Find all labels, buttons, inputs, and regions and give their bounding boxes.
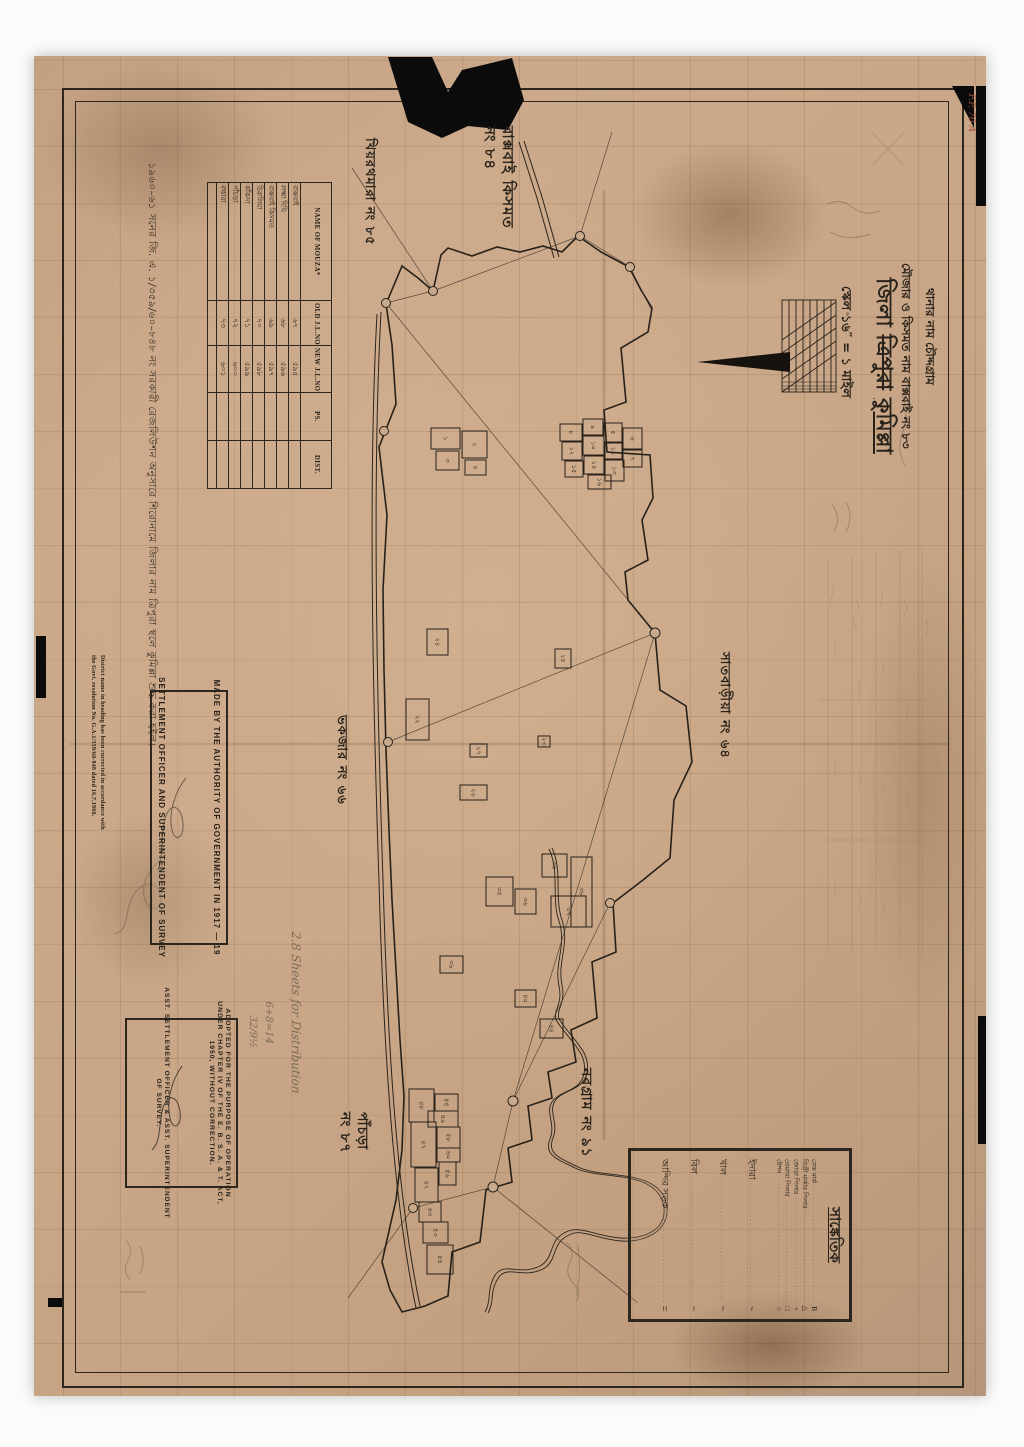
mouza-table-row: লক্ষ্মা দিঘি৬৮৫৯৬ <box>277 183 289 489</box>
map-annotation: বাক্সবাই কিসমতনং ৮৪ <box>480 126 517 229</box>
legend-label: ইদারা <box>745 1159 756 1180</box>
adopted-line5: OF SURVEY. <box>154 1078 162 1127</box>
plot-number: ৬ <box>629 436 637 441</box>
mouza-table-cell: কাঁকসা <box>241 183 253 301</box>
plot-number: ৪২ <box>423 1181 431 1189</box>
mouza-table-cell <box>229 393 241 441</box>
legend-label: তেমাথা পিলার <box>783 1159 790 1197</box>
legend-symbol-icon: B <box>810 1306 818 1311</box>
legend-title: সাঙ্কেতিক <box>826 1159 843 1311</box>
authority-line2: SETTLEMENT OFFICER AND SUPERINTENDENT OF… <box>157 677 166 958</box>
plot-number: ১০ <box>590 441 598 449</box>
adopted-line4: ASST. SETTLEMENT OFFICER & ASST. SUPERIN… <box>162 987 170 1218</box>
legend-leader-dots: ········································… <box>774 1176 780 1304</box>
plot-number: ১৬ <box>596 478 604 487</box>
legend-feature-rows: ইদারা···································… <box>658 1159 757 1311</box>
legend-label: বেঞ্চ মার্ক <box>809 1159 816 1183</box>
mouza-table-row: চিরুলিয়া৭০৫৯৮ <box>253 183 265 489</box>
legend-row: তেমাথা পিলার····························… <box>783 1159 792 1311</box>
legend-symbol-icon: + <box>792 1307 800 1311</box>
mouza-table-row: বাক্সবাই৬৭৫৯৫ <box>289 183 301 489</box>
plot-number: ৫৯ <box>439 1115 447 1124</box>
mouza-table-cell: ৬৯ <box>265 301 277 346</box>
mouza-table-row: বাক্সবাই কিসমত৬৯৫৯৭ <box>265 183 277 489</box>
legend-symbol-icon: = <box>660 1306 670 1311</box>
mouza-table-cell: ৫৯৭ <box>265 346 277 393</box>
mouza-table-row: কাঁকসা৭১৫৯৯ <box>241 183 253 489</box>
district-label: জিলা <box>871 278 896 327</box>
legend-leader-dots: ········································… <box>792 1198 798 1305</box>
mouza-table-header-row: NAME OF MOUZA*OLD J.L.NONEW J.L.NO*PS.DI… <box>301 183 332 489</box>
correction-line1: District name in heading has been correc… <box>97 655 106 830</box>
authority-box-wrap: MADE BY THE AUTHORITY OF GOVERNMENT IN 1… <box>150 690 228 945</box>
plot-parcels: ৮৯৫৬১২১০১১৭১৫১৪১৩১৬১২৩৪২৪২৫২২২৩২৬২৭৩৪৩৮৩… <box>406 419 642 1274</box>
plot-number: ৪৪ <box>548 1024 556 1032</box>
plot-number: ৫৪ <box>436 1255 444 1263</box>
plot-number: ৪৮ <box>418 1101 426 1110</box>
pencil-note: F.P. 70 A <box>966 93 976 132</box>
plot-number: ৫৩ <box>432 1228 440 1237</box>
plot-number: ২৪ <box>434 638 442 646</box>
legend-leader-dots: ········································… <box>809 1186 815 1303</box>
mouza-table-cell <box>253 393 265 441</box>
plot-number: ১ <box>442 436 450 440</box>
plot-number: ৪৩ <box>426 1208 434 1217</box>
map-annotation: ভকজার নং ৬৬ <box>332 715 348 805</box>
map-annotation-line: নং ৮৪ <box>481 126 498 229</box>
traverse-lines <box>348 132 655 1303</box>
mouza-table-cell <box>208 346 217 393</box>
legend-symbol-icon: ~ <box>718 1306 728 1311</box>
title-thana-line: থানার নাম চৌদ্দগ্রাম <box>922 288 936 385</box>
plot-number: ৫৬ <box>444 1169 452 1178</box>
legend-label: আন্দির সড়ক <box>658 1159 669 1208</box>
mouza-table-cell <box>265 393 277 441</box>
legend-label: জোড়া পিলার <box>792 1159 799 1195</box>
legend-label: ষ্টেশন <box>774 1159 781 1173</box>
mouza-table-cell: পাঁচড়া <box>229 183 241 301</box>
road-north <box>519 141 559 258</box>
adopted-box-wrap: ADOPTED FOR THE PURPOSE OF OPERATION UND… <box>125 1018 238 1188</box>
map-annotation-line: পাঁচড়া <box>354 1112 370 1153</box>
plot-number: ৬০ <box>445 1151 453 1159</box>
title-mouza-line: মৌজার ও কিসমত নাম বাক্সবাই নং ৮৩ <box>898 263 912 449</box>
north-pointer <box>697 352 790 372</box>
mouza-table-cell: বাক্সবাই <box>289 183 301 301</box>
marginal-handwritten-note: ১৯৬০–৬১ সনের জি. এ. ১/৩৫৯/৬০–৮৪৮ নং সরকা… <box>146 162 158 747</box>
mouza-table-cell <box>208 301 217 346</box>
mouza-table-cell: লক্ষ্মা দিঘি <box>277 183 289 301</box>
mouza-table-cell: বাক্সবাই কিসমত <box>265 183 277 301</box>
legend-leader-dots: ········································… <box>800 1212 806 1303</box>
plot-number: ২৭ <box>475 746 483 754</box>
mouza-table-cell: ৫৯৯ <box>241 346 253 393</box>
legend-row: জোড়া পিলার·····························… <box>792 1159 801 1311</box>
adopted-box: ADOPTED FOR THE PURPOSE OF OPERATION UND… <box>125 1018 238 1188</box>
adopted-line3: 1950, WITHOUT CORRECTION. <box>208 1040 216 1165</box>
district-struck: ত্রিপুরা <box>871 334 896 390</box>
mouza-table-cell: ৬৭ <box>289 301 301 346</box>
legend-leader-dots: ········································… <box>659 1211 665 1302</box>
legend-symbol-icon: △ <box>801 1306 809 1311</box>
map-annotation-line: নং ৮৭ <box>337 1112 353 1153</box>
legend-label: ডিগ্রী মার্কার পিলার <box>801 1159 808 1209</box>
legend-label: খাল <box>716 1159 727 1175</box>
map-annotation: খিয়রথমারা নং ৮৫ <box>360 138 376 246</box>
plot-number: ২ <box>471 442 479 446</box>
district-new: কুমিল্লা <box>871 398 896 454</box>
plot-number: ১১ <box>610 447 618 455</box>
mouza-table-cell <box>217 393 229 441</box>
mouza-table-cell <box>277 393 289 441</box>
scale-diagram <box>782 300 836 392</box>
mouza-table-cell <box>289 393 301 441</box>
scale-tick-labels: ১৬ ৮ ০ <box>843 303 850 352</box>
mouza-table-wrap: NAME OF MOUZA*OLD J.L.NONEW J.L.NO*PS.DI… <box>207 182 332 489</box>
plot-number: ৩৭ <box>565 907 573 915</box>
plot-number: ৩৫ <box>496 887 504 895</box>
mouza-table-blank-row <box>208 183 217 489</box>
plot-number: ১৪ <box>590 461 598 469</box>
legend-row: আন্দির সড়ক·····························… <box>658 1159 670 1311</box>
plot-number: ৫ <box>609 430 617 434</box>
legend-row: ডিগ্রী মার্কার পিলার····················… <box>800 1159 809 1311</box>
mouza-table-cell: বহ্মারা <box>217 183 229 301</box>
plot-number: ২২ <box>414 715 422 723</box>
mouza-table-cell: ৭০ <box>253 301 265 346</box>
map-annotation: নবগ্রাম নং ৯১ <box>577 1068 594 1158</box>
title-district-line: জিলা ত্রিপুরা কুমিল্লা <box>871 278 896 454</box>
legend-row: ষ্টেশন··································… <box>774 1159 783 1311</box>
mouza-table-cell <box>208 441 217 489</box>
mouza-table-row: পাঁচড়া৭২৬০০ <box>229 183 241 489</box>
legend-symbol-icon: ~ <box>689 1306 699 1311</box>
mouza-table-cell <box>289 441 301 489</box>
mouza-table-cell <box>241 393 253 441</box>
legend-row: বেঞ্চ মার্ক·····························… <box>809 1159 818 1311</box>
mouza-table-cell <box>217 441 229 489</box>
mouza-table-cell: ৫৯৬ <box>277 346 289 393</box>
map-annotation-line: সাতবাড়ীয়া নং ৬৪ <box>716 652 731 759</box>
mouza-table-cell: ৫৯৮ <box>253 346 265 393</box>
pencil-ledger <box>820 548 930 958</box>
pencil-note: 6+8=14 <box>263 1001 275 1044</box>
legend-pillar-rows: বেঞ্চ মার্ক·····························… <box>774 1159 818 1311</box>
map-annotation-line: ভকজার নং ৬৬ <box>333 715 348 805</box>
mouza-table-cell <box>253 441 265 489</box>
legend-box: সাঙ্কেতিক বেঞ্চ মার্ক···················… <box>628 1148 852 1322</box>
pencil-note: 2.8 Sheets for Distribution <box>288 931 302 1094</box>
legend-row: বিল·····································… <box>687 1159 699 1311</box>
authority-box: MADE BY THE AUTHORITY OF GOVERNMENT IN 1… <box>150 690 228 945</box>
legend-wrap: সাঙ্কেতিক বেঞ্চ মার্ক···················… <box>628 1148 852 1322</box>
adopted-line2: UNDER CHAPTER IV OF THE E. B. S. A. & T.… <box>215 1001 223 1204</box>
plot-number: ৫৮ <box>445 1133 453 1142</box>
plot-number: ৪০ <box>522 994 530 1002</box>
map-annotation: পাঁচড়ানং ৮৭ <box>336 1112 370 1153</box>
map-annotation: সাতবাড়ীয়া নং ৬৪ <box>715 652 731 759</box>
legend-leader-dots: ········································… <box>746 1183 752 1303</box>
mouza-table-header-cell: PS. <box>301 393 332 441</box>
mouza-table-cell: ৭৩ <box>217 301 229 346</box>
plot-number: ৪ <box>472 465 480 469</box>
legend-leader-dots: ········································… <box>688 1177 694 1303</box>
legend-symbol-icon: ~ <box>747 1306 757 1311</box>
plot-number: ৫৫ <box>443 1098 451 1106</box>
mouza-table-cell: ৭১ <box>241 301 253 346</box>
mouza-table-cell <box>265 441 277 489</box>
mouza-table-header-cell: NAME OF MOUZA* <box>301 183 332 301</box>
plot-number: ৯ <box>589 425 597 430</box>
map-annotation-line: খিয়রথমারা নং ৮৫ <box>361 138 376 246</box>
plot-number: ৭ <box>629 456 637 460</box>
plot-number: ১২ <box>568 447 576 455</box>
district-correction-note: District name in heading has been correc… <box>88 655 106 830</box>
plot-number: ৮ <box>567 430 575 435</box>
map-annotation-line: নবগ্রাম নং ৯১ <box>578 1068 594 1158</box>
mouza-table-body: বাক্সবাই৬৭৫৯৫লক্ষ্মা দিঘি৬৮৫৯৬বাক্সবাই ক… <box>208 183 301 489</box>
mouza-table-cell: ৭২ <box>229 301 241 346</box>
mouza-table-cell: ৬৮ <box>277 301 289 346</box>
plot-number: ২৫ <box>559 654 567 662</box>
mouza-table-cell: ৬০১ <box>217 346 229 393</box>
plot-number: ৪৭ <box>420 1140 428 1148</box>
plot-number: ২৬ <box>470 788 478 797</box>
correction-line2: the Govt. resolution No. G.A.1/359/60-84… <box>88 655 97 830</box>
mouza-table-header-cell: DIST. <box>301 441 332 489</box>
legend-symbol-icon: □ <box>783 1307 791 1311</box>
plot-number: ৩ <box>444 458 452 463</box>
mouza-table-cell <box>277 441 289 489</box>
mouza-table: NAME OF MOUZA*OLD J.L.NONEW J.L.NO*PS.DI… <box>207 182 332 489</box>
mouza-table-header-cell: NEW J.L.NO* <box>301 346 332 393</box>
plot-number: ১৩ <box>611 466 619 475</box>
mouza-table-cell: ৫৯৫ <box>289 346 301 393</box>
map-annotation-line: বাক্সবাই কিসমত <box>499 126 516 229</box>
plot-number: ৩৯ <box>448 960 456 969</box>
legend-leader-dots: ········································… <box>717 1178 723 1303</box>
plot-number: ৩৬ <box>522 897 530 906</box>
legend-label: বিল <box>687 1159 698 1174</box>
authority-line1: MADE BY THE AUTHORITY OF GOVERNMENT IN 1… <box>212 680 221 956</box>
mouza-table-cell: চিরুলিয়া <box>253 183 265 301</box>
plot-number: ৩৪ <box>551 861 559 869</box>
plot-number: ১৫ <box>570 465 578 473</box>
mouza-table-header-cell: OLD J.L.NO <box>301 301 332 346</box>
legend-leader-dots: ········································… <box>783 1200 789 1304</box>
mouza-table-cell <box>229 441 241 489</box>
scanned-mouza-map-page: ৮৯৫৬১২১০১১৭১৫১৪১৩১৬১২৩৪২৪২৫২২২৩২৬২৭৩৪৩৮৩… <box>0 0 1024 1447</box>
mouza-table-cell: ৬০০ <box>229 346 241 393</box>
plot-number: ২৩ <box>540 737 548 746</box>
mouza-table-cell <box>208 393 217 441</box>
legend-row: খাল·····································… <box>716 1159 728 1311</box>
mouza-table-row: বহ্মারা৭৩৬০১ <box>217 183 229 489</box>
legend-row: ইদারা···································… <box>745 1159 757 1311</box>
road-west <box>372 312 420 1308</box>
mouza-table-cell <box>208 183 217 301</box>
adopted-line1: ADOPTED FOR THE PURPOSE OF OPERATION <box>223 1008 231 1197</box>
legend-symbol-icon: ○ <box>775 1307 783 1311</box>
pencil-note: 32/9½ <box>247 1015 259 1048</box>
mouza-table-cell <box>241 441 253 489</box>
